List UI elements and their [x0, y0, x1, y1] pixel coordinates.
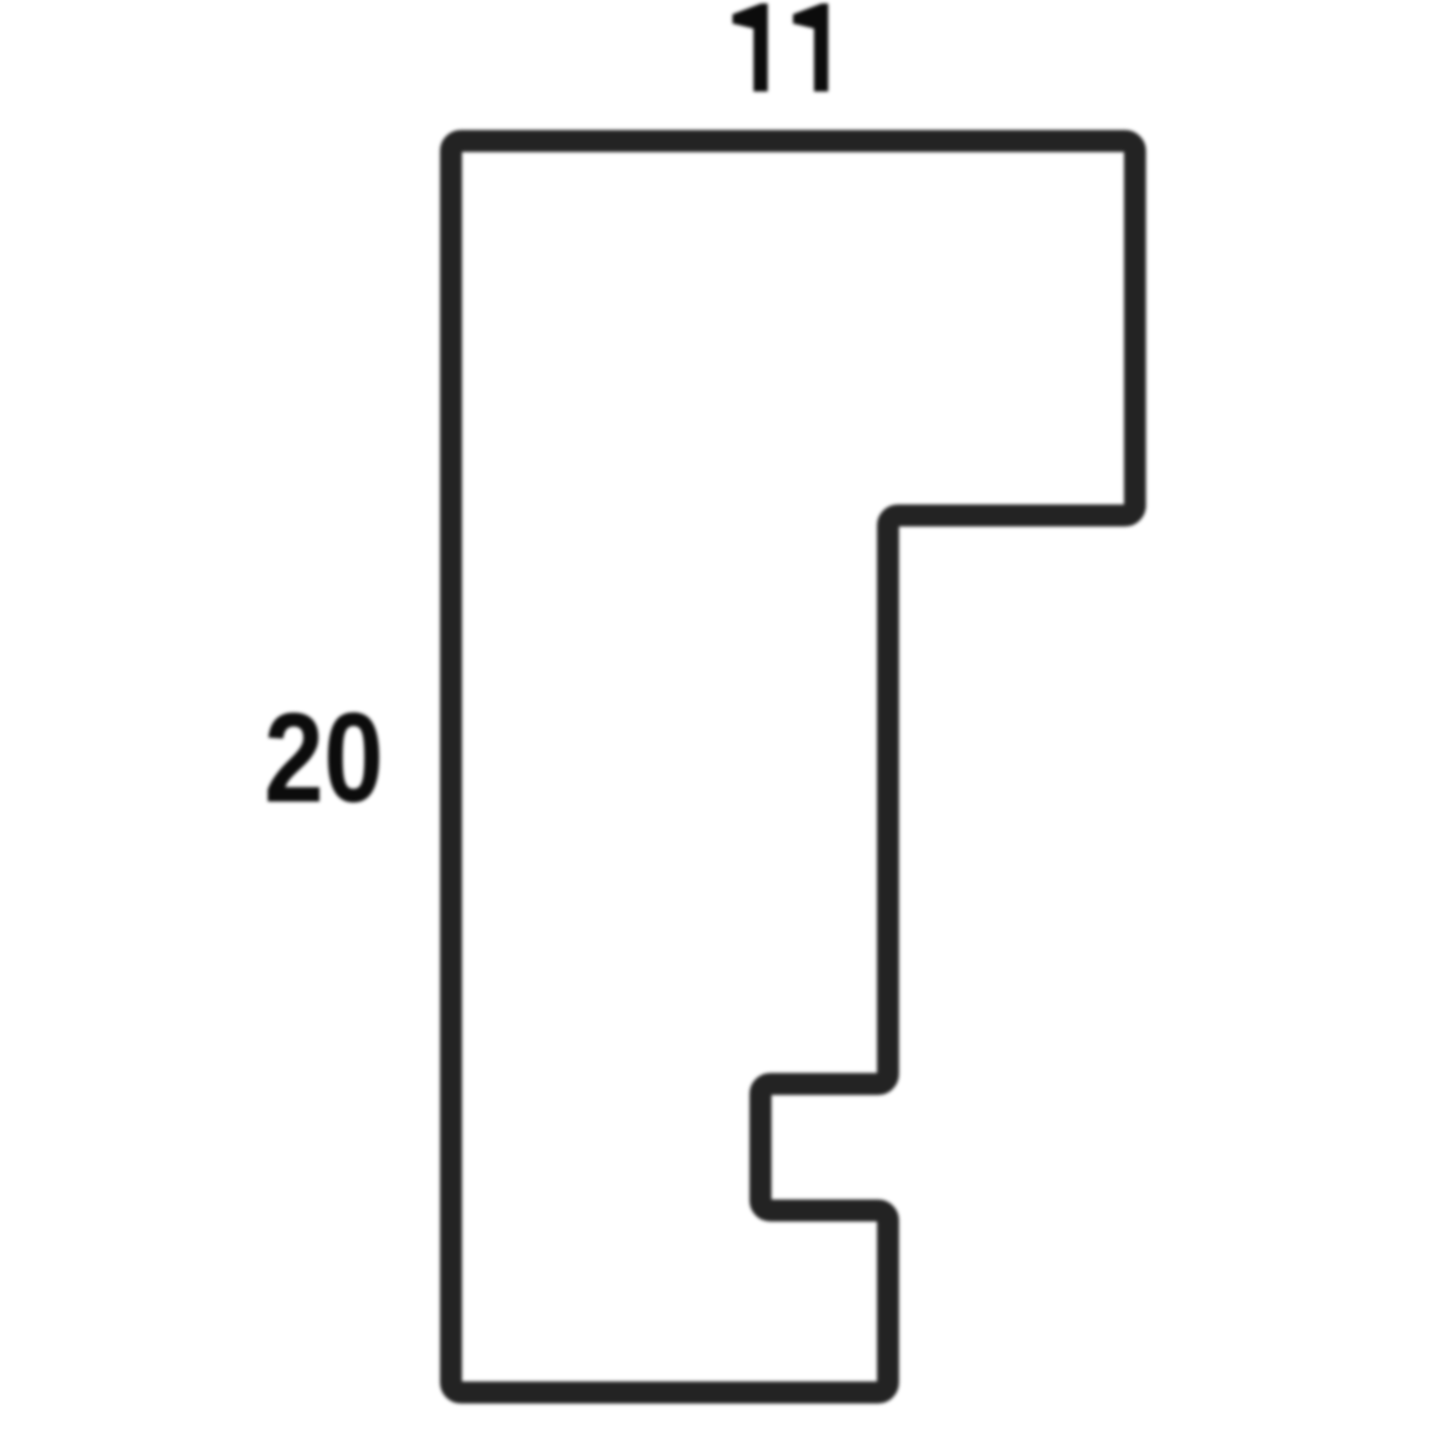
svg-text:20: 20	[264, 687, 383, 828]
